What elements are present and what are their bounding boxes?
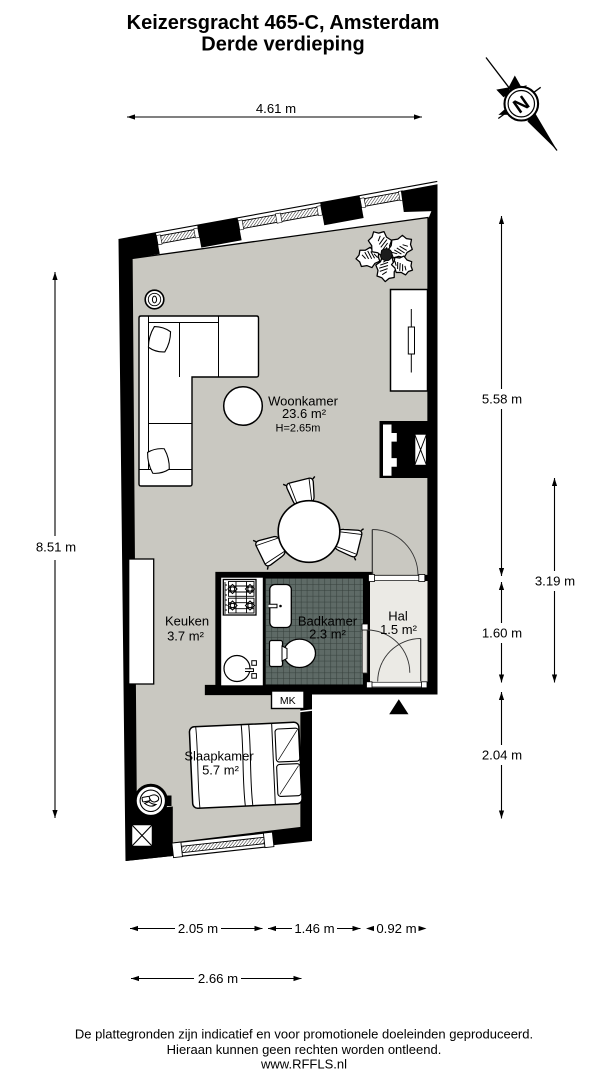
svg-text:MK: MK: [280, 695, 296, 707]
svg-text:8.51 m: 8.51 m: [36, 540, 76, 555]
svg-text:Keizersgracht 465-C, Amsterdam: Keizersgracht 465-C, Amsterdam: [127, 12, 440, 34]
svg-text:De plattegronden zijn indicati: De plattegronden zijn indicatief en voor…: [75, 1027, 533, 1042]
svg-text:5.58 m: 5.58 m: [482, 392, 522, 407]
svg-text:5.7 m²: 5.7 m²: [202, 763, 240, 778]
svg-text:H=2.65m: H=2.65m: [276, 423, 321, 435]
svg-text:Slaapkamer: Slaapkamer: [184, 749, 254, 764]
svg-text:2.04 m: 2.04 m: [482, 748, 522, 763]
svg-text:1.46 m: 1.46 m: [294, 921, 334, 936]
svg-text:3.7 m²: 3.7 m²: [167, 629, 205, 644]
svg-text:3.19 m: 3.19 m: [535, 574, 575, 589]
svg-text:www.RFFLS.nl: www.RFFLS.nl: [260, 1057, 347, 1072]
svg-text:4.61 m: 4.61 m: [256, 101, 296, 116]
svg-text:Hieraan kunnen geen rechten wo: Hieraan kunnen geen rechten worden ontle…: [167, 1042, 442, 1057]
svg-text:2.66 m: 2.66 m: [198, 971, 238, 986]
svg-text:1.60 m: 1.60 m: [482, 626, 522, 641]
svg-text:0.92 m: 0.92 m: [376, 921, 416, 936]
svg-text:2.05 m: 2.05 m: [178, 921, 218, 936]
svg-text:Keuken: Keuken: [165, 614, 209, 629]
svg-text:23.6 m²: 23.6 m²: [282, 406, 327, 421]
svg-text:1.5 m²: 1.5 m²: [380, 622, 418, 637]
svg-text:Derde verdieping: Derde verdieping: [201, 34, 364, 56]
svg-text:2.3 m²: 2.3 m²: [309, 627, 347, 642]
